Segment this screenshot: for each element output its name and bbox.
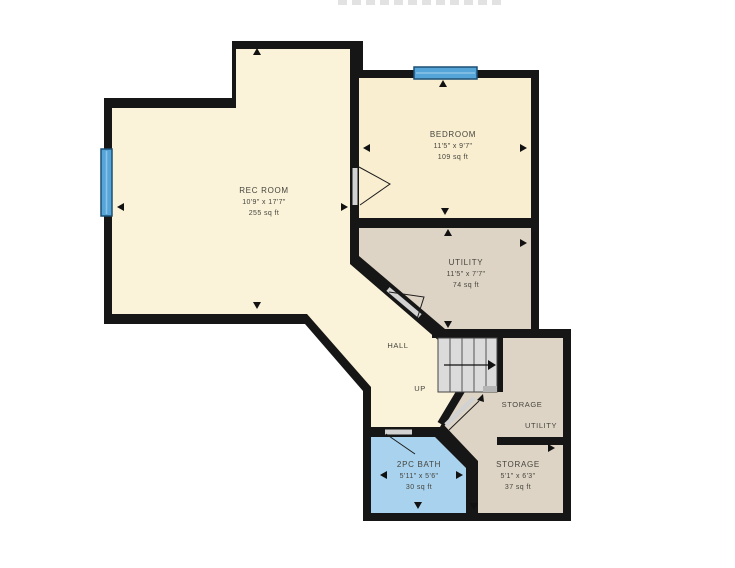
wall-bedroom-divider-upper — [350, 41, 359, 166]
storage-dims: 5'1" x 6'3" — [500, 473, 535, 480]
utility-dims: 11'5" x 7'7" — [447, 271, 486, 278]
wall-bedroom-utility — [350, 218, 539, 228]
stairs-landing-edge — [483, 386, 497, 392]
rec-room-area: 255 sq ft — [249, 210, 279, 217]
wall-stairs-top — [432, 329, 571, 338]
wall-stairs-right — [497, 338, 503, 392]
storage-label: STORAGE — [496, 460, 540, 469]
storage-closet-utility-label: UTILITY — [525, 421, 557, 430]
bath-label: 2PC BATH — [397, 460, 441, 469]
floorplan-svg: REC ROOM 10'9" x 17'7" 255 sq ft BEDROOM… — [0, 0, 735, 568]
floorplan-canvas: REC ROOM 10'9" x 17'7" 255 sq ft BEDROOM… — [0, 0, 735, 568]
rec-room-dims: 10'9" x 17'7" — [242, 199, 286, 206]
hall-label: HALL — [387, 341, 408, 350]
bedroom-area: 109 sq ft — [438, 154, 468, 161]
bedroom-label: BEDROOM — [430, 130, 476, 139]
stairs — [438, 338, 497, 392]
utility-area: 74 sq ft — [453, 282, 479, 289]
bath-area: 30 sq ft — [406, 484, 432, 491]
utility-label: UTILITY — [449, 258, 484, 267]
stairs-up-label: UP — [414, 384, 426, 393]
storage-closet-label: STORAGE — [502, 400, 543, 409]
wall-storage-divider — [497, 437, 563, 445]
bedroom-dims: 11'5" x 9'7" — [434, 143, 473, 150]
bath-dims: 5'11" x 5'6" — [400, 473, 439, 480]
storage-area: 37 sq ft — [505, 484, 531, 491]
rec-room-label: REC ROOM — [239, 186, 289, 195]
wall-bath-top-left — [367, 429, 384, 437]
